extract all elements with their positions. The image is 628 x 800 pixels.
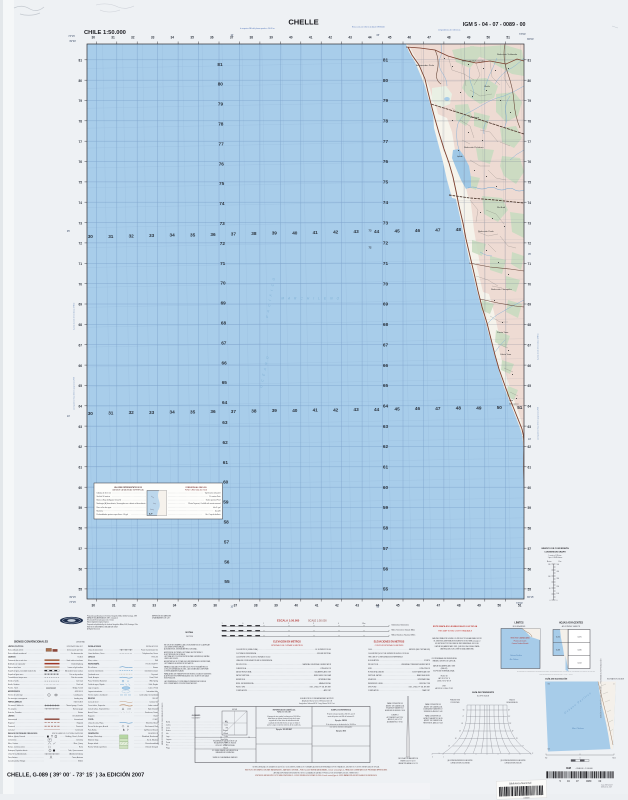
- svg-text:47: 47: [435, 228, 441, 233]
- svg-text:61: 61: [383, 465, 389, 470]
- svg-text:x 125: x 125: [127, 709, 131, 711]
- svg-text:Ducañll: Ducañll: [215, 509, 221, 512]
- svg-text:50: 50: [498, 604, 502, 608]
- svg-text:77: 77: [218, 141, 224, 146]
- svg-text:CHELLE: CHELLE: [288, 18, 318, 27]
- svg-text:NOTAS: NOTAS: [186, 631, 194, 634]
- svg-text:67: 67: [221, 340, 227, 345]
- svg-text:43: 43: [353, 229, 359, 234]
- svg-text:71: 71: [383, 261, 389, 266]
- svg-text:31: 31: [108, 411, 114, 416]
- svg-text:INTERVALO DE CURVAS 50 METROS: INTERVALO DE CURVAS 50 METROS: [271, 644, 303, 647]
- svg-text:48: 48: [457, 604, 461, 608]
- svg-text:46: 46: [408, 36, 412, 40]
- svg-text:39: 39: [272, 408, 278, 413]
- svg-text:Reducción Peule: Reducción Peule: [478, 231, 495, 233]
- svg-text:0089: 0089: [586, 780, 592, 783]
- svg-text:Bahía: Bahía: [166, 722, 170, 724]
- svg-text:32: 32: [131, 36, 135, 40]
- svg-text:Well, Spring: Well, Spring: [149, 681, 158, 683]
- svg-text:36: 36: [210, 232, 216, 237]
- svg-text:50: 50: [549, 588, 551, 590]
- svg-text:SCALE 1:50.000: SCALE 1:50.000: [308, 620, 327, 623]
- svg-text:RELIEVE: RELIEVE: [88, 698, 95, 700]
- svg-text:39°15': 39°15': [69, 596, 76, 599]
- svg-text:35: 35: [190, 232, 196, 237]
- svg-text:71: 71: [78, 262, 82, 266]
- svg-text:LINKS UND SCHON.: LINKS UND SCHON.: [164, 658, 179, 660]
- svg-text:45: 45: [396, 604, 400, 608]
- svg-text:33: 33: [149, 233, 155, 238]
- svg-text:05': 05': [376, 34, 380, 37]
- svg-text:75: 75: [219, 181, 225, 186]
- svg-text:Sin demarcación: Sin demarcación: [71, 653, 83, 655]
- svg-text:Ejemplo: 18G MD 8667: Ejemplo: 18G MD 8667: [276, 729, 292, 731]
- svg-text:19: 19: [448, 746, 450, 748]
- svg-text:79: 79: [383, 98, 389, 103]
- svg-text:FENCES: FENCES: [152, 656, 158, 658]
- svg-text:60: 60: [383, 485, 389, 490]
- svg-text:41: 41: [309, 36, 313, 40]
- svg-text:81: 81: [383, 58, 389, 63]
- svg-text:72: 72: [383, 241, 389, 246]
- svg-text:Bridge, Tunnel: Bridge, Tunnel: [73, 688, 84, 690]
- svg-text:HUSO 18: HUSO 18: [441, 676, 448, 678]
- svg-text:39°00': 39°00': [69, 40, 76, 43]
- svg-text:1.000: 1.000: [368, 649, 372, 651]
- svg-text:58: 58: [383, 526, 389, 531]
- svg-text:Esta carta se refiere al datum: Esta carta se refiere al datum WGS-84: [352, 26, 384, 29]
- svg-text:64: 64: [78, 405, 82, 409]
- svg-text:77: 77: [78, 140, 82, 144]
- svg-text:39: 39: [274, 604, 278, 608]
- svg-text:Naufragio (A) descubierto, Sum: Naufragio (A) descubierto, Sumergido con…: [97, 502, 146, 505]
- svg-text:Chelle: Chelle: [484, 86, 491, 88]
- svg-text:Building, Church, School: Building, Church, School: [66, 736, 84, 738]
- svg-text:38: 38: [254, 604, 258, 608]
- svg-text:49: 49: [467, 36, 471, 40]
- svg-text:1: 1: [263, 623, 264, 625]
- svg-text:500: 500: [557, 564, 560, 566]
- svg-text:Edificio, Iglesia, Escuela: Edificio, Iglesia, Escuela: [8, 736, 25, 738]
- svg-text:33: 33: [149, 410, 155, 415]
- svg-text:57: 57: [528, 547, 532, 551]
- svg-text:74: 74: [219, 201, 225, 206]
- svg-text:G-102: G-102: [577, 663, 581, 665]
- svg-text:62: 62: [528, 445, 532, 449]
- svg-text:30: 30: [92, 604, 96, 608]
- svg-text:73°00': 73°00': [516, 602, 523, 605]
- svg-text:75: 75: [383, 180, 389, 185]
- svg-text:41: 41: [313, 408, 319, 413]
- svg-text:LEGEND: LEGEND: [76, 642, 85, 644]
- svg-text:62: 62: [222, 440, 228, 445]
- svg-text:69: 69: [221, 301, 227, 306]
- svg-text:66: 66: [221, 360, 227, 365]
- svg-text:30: 30: [88, 411, 94, 416]
- svg-text:GUÍA DE ELEVACIÓN: GUÍA DE ELEVACIÓN: [545, 678, 568, 681]
- svg-text:37: 37: [234, 604, 238, 608]
- svg-text:POINTS: POINTS: [424, 660, 430, 662]
- svg-text:40: 40: [289, 36, 293, 40]
- svg-text:55: 55: [383, 587, 389, 592]
- svg-text:31: 31: [112, 604, 116, 608]
- svg-text:G-090: G-090: [577, 650, 581, 652]
- svg-text:750: 750: [548, 684, 551, 686]
- svg-text:43: 43: [355, 604, 359, 608]
- svg-text:Plesio Taymuni, Cuellall with: Plesio Taymuni, Cuellall with morte mana…: [188, 502, 220, 505]
- svg-text:47: 47: [435, 406, 441, 411]
- svg-text:79: 79: [218, 102, 224, 107]
- svg-text:CHILE 1:50.000: CHILE 1:50.000: [84, 30, 126, 36]
- svg-text:64: 64: [528, 405, 532, 409]
- svg-text:76: 76: [219, 161, 225, 166]
- svg-text:Vía normal / doble vía: Vía normal / doble vía: [8, 705, 24, 707]
- svg-text:47: 47: [437, 604, 441, 608]
- svg-text:57: 57: [78, 547, 82, 551]
- svg-text:71: 71: [220, 261, 226, 266]
- svg-text:70: 70: [528, 282, 532, 286]
- svg-text:Rock awash, Reef: Rock awash, Reef: [145, 726, 158, 728]
- svg-text:49: 49: [476, 405, 482, 410]
- svg-text:10': 10': [67, 415, 71, 418]
- svg-text:Beach: Beach: [223, 748, 228, 750]
- svg-text:61: 61: [78, 466, 82, 470]
- svg-text:34: 34: [169, 233, 175, 238]
- svg-text:30: 30: [92, 36, 96, 40]
- svg-text:39: 39: [269, 36, 273, 40]
- svg-text:42: 42: [333, 407, 339, 412]
- svg-text:70: 70: [78, 282, 82, 286]
- svg-text:46: 46: [415, 228, 421, 233]
- svg-text:Banco o Bajo de Aguas Chauchil: Banco o Bajo de Aguas Chauchil: [97, 499, 122, 502]
- svg-text:73: 73: [383, 220, 389, 225]
- svg-text:ELEVACIONES EN METROS: ELEVACIONES EN METROS: [374, 641, 405, 644]
- svg-text:IGM - CHILE, PT SN, IER RRT: IGM - CHILE, PT SN, IER RRT: [310, 687, 331, 689]
- svg-text:60: 60: [223, 480, 229, 485]
- svg-text:IGM: IGM: [566, 766, 571, 770]
- svg-text:IGM 5 - 04 - 07 - 0089 - 00: IGM 5 - 04 - 07 - 0089 - 00: [463, 22, 526, 28]
- svg-text:Ejemplo: 8676: Ejemplo: 8676: [336, 731, 346, 733]
- svg-text:57: 57: [383, 546, 389, 551]
- svg-text:Sucho querca Pleof: Sucho querca Pleof: [206, 499, 221, 502]
- svg-text:48: 48: [456, 227, 462, 232]
- svg-text:40: 40: [292, 408, 298, 413]
- svg-text:PROJECTION: PROJECTION: [368, 664, 378, 666]
- svg-text:Cove: Cove: [224, 724, 228, 726]
- svg-text:THIS MAP IS RED LIGHT READABLE: THIS MAP IS RED LIGHT READABLE: [438, 630, 473, 633]
- svg-text:Kilómetros Kilometers: Kilómetros Kilometers: [392, 624, 410, 627]
- svg-text:36: 36: [210, 409, 216, 414]
- svg-text:REFERENCE LEVEL: REFERENCE LEVEL: [368, 683, 383, 685]
- svg-text:19: 19: [248, 737, 250, 739]
- svg-text:Rocks: Rocks: [154, 715, 159, 717]
- svg-text:81: 81: [217, 62, 223, 67]
- svg-text:79: 79: [78, 99, 82, 103]
- svg-text:Océano Pacífico: Océano Pacífico: [510, 655, 522, 657]
- svg-text:73: 73: [78, 221, 82, 225]
- svg-text:Lago o Laguna: Lago o Laguna: [88, 688, 99, 690]
- svg-text:Regional: Regional: [8, 722, 15, 724]
- svg-text:74: 74: [528, 201, 532, 205]
- svg-text:GUÍA DE PENDIENTE: GUÍA DE PENDIENTE: [472, 691, 495, 694]
- svg-text:GN MN: GN MN: [232, 709, 237, 711]
- svg-text:Divided highway: Divided highway: [71, 663, 83, 665]
- svg-text:65: 65: [528, 384, 532, 388]
- svg-text:69: 69: [528, 303, 532, 307]
- svg-text:62: 62: [383, 444, 389, 449]
- svg-text:55: 55: [528, 588, 532, 592]
- svg-text:51: 51: [517, 405, 523, 410]
- svg-text:SIGNOS CONVENCIONALES: SIGNOS CONVENCIONALES: [14, 641, 48, 644]
- svg-text:Casa de piedra, Refugio: Casa de piedra, Refugio: [8, 761, 25, 763]
- svg-text:74: 74: [383, 200, 389, 205]
- svg-text:Senda o huella: Senda o huella: [8, 681, 19, 683]
- svg-text:mapa IGM 5-04-07: mapa IGM 5-04-07: [601, 784, 613, 786]
- svg-text:IGM - CHILE, PT SN, IER RRT: IGM - CHILE, PT SN, IER RRT: [409, 687, 430, 689]
- svg-text:78: 78: [383, 119, 389, 124]
- svg-text:36: 36: [213, 604, 217, 608]
- svg-text:32: 32: [132, 604, 136, 608]
- svg-text:71: 71: [528, 262, 532, 266]
- svg-text:41: 41: [315, 604, 319, 608]
- svg-text:Miles Terrestres Statute Mil: Miles Terrestres Statute Miles: [392, 629, 416, 632]
- svg-text:la esquina NE del plano queda: la esquina NE del plano queda a 24.09 m: [240, 28, 275, 30]
- svg-text:ESCALA 1:50.000: ESCALA 1:50.000: [277, 619, 300, 623]
- svg-text:43: 43: [353, 407, 359, 412]
- svg-text:Reducción Chanquilco: Reducción Chanquilco: [491, 289, 513, 291]
- svg-text:ESTE MAPA ES LEGIBLE BAJO LUZ: ESTE MAPA ES LEGIBLE BAJO LUZ ROJA: [433, 625, 478, 628]
- svg-text:100: 100: [548, 749, 551, 751]
- svg-text:56: 56: [383, 566, 389, 571]
- svg-text:Curva de nivel: Curva de nivel: [88, 702, 99, 704]
- svg-text:Faro, Baliza: Faro, Baliza: [88, 729, 97, 731]
- svg-text:37: 37: [231, 409, 237, 414]
- svg-text:31: 31: [111, 36, 115, 40]
- svg-text:Scrub, Meadow: Scrub, Meadow: [147, 740, 159, 742]
- svg-text:Landing area: Landing area: [74, 695, 83, 697]
- svg-text:corresponde al huso 19 de la p: corresponde al huso 19 de la proyección …: [538, 407, 540, 440]
- svg-text:67: 67: [383, 342, 389, 347]
- svg-text:58: 58: [78, 527, 82, 531]
- svg-text:80: 80: [383, 78, 389, 83]
- svg-text:HOJAS ADYACENTES: HOJAS ADYACENTES: [559, 622, 584, 625]
- svg-text:59: 59: [223, 500, 229, 505]
- svg-text:RELIEF: RELIEF: [152, 698, 158, 700]
- svg-text:Caída de agua, Rápido: Caída de agua, Rápido: [88, 684, 105, 686]
- svg-text:40: 40: [295, 604, 299, 608]
- svg-text:198828: 198828: [523, 797, 529, 799]
- svg-text:1987: 1987: [442, 686, 446, 688]
- svg-text:38: 38: [251, 409, 257, 414]
- svg-text:Provincial: Provincial: [76, 726, 84, 728]
- svg-text:81: 81: [528, 59, 532, 63]
- svg-text:Pu centra Peta: Pu centra Peta: [209, 495, 220, 498]
- svg-text:- CHELLE - 1:50.000: - CHELLE - 1:50.000: [575, 768, 593, 770]
- svg-text:66: 66: [78, 364, 82, 368]
- svg-text:NOTES: NOTES: [186, 636, 194, 638]
- svg-text:EJEMPLO: EJEMPLO: [391, 715, 399, 717]
- svg-text:CONVERSION GRAPH: CONVERSION GRAPH: [544, 550, 566, 553]
- svg-text:Profundidades puntos específic: Profundidades puntos específicos - 60 ga…: [97, 513, 129, 516]
- svg-text:EL SUPERIOR 18.000: EL SUPERIOR 18.000: [315, 649, 331, 651]
- svg-text:38: 38: [250, 36, 254, 40]
- svg-text:Isolde: Isolde: [457, 156, 463, 158]
- svg-text:Tank, Open reservoir: Tank, Open reservoir: [68, 750, 83, 752]
- svg-text:Bahamondes Peule: Bahamondes Peule: [416, 65, 435, 67]
- svg-text:GPS POINT: GPS POINT: [368, 687, 376, 689]
- svg-text:Isla: Isla: [166, 733, 169, 735]
- svg-text:59: 59: [78, 506, 82, 510]
- svg-text:Communal: Communal: [75, 729, 83, 731]
- svg-text:63: 63: [78, 425, 82, 429]
- svg-text:G-074: G-074: [556, 637, 560, 639]
- svg-text:81: 81: [78, 59, 82, 63]
- svg-text:58: 58: [224, 520, 230, 525]
- svg-text:CONTOUR INTERVAL 50 METERS: CONTOUR INTERVAL 50 METERS: [375, 644, 404, 647]
- svg-text:90: 90: [463, 710, 465, 712]
- svg-text:42: 42: [329, 36, 333, 40]
- svg-text:Veril de 50 metros: Veril de 50 metros: [97, 495, 111, 498]
- svg-text:45: 45: [394, 228, 400, 233]
- svg-text:42: 42: [333, 230, 339, 235]
- svg-text:Superficie ligera seca: Superficie ligera seca: [8, 674, 23, 676]
- svg-text:PENDIENTE EN: PENDIENTE EN: [450, 700, 460, 702]
- svg-text:18: 18: [220, 737, 222, 739]
- svg-text:Lake or Pond: Lake or Pond: [149, 688, 159, 690]
- svg-text:77: 77: [528, 140, 532, 144]
- svg-text:56: 56: [78, 567, 82, 571]
- svg-text:Reducción Trallonada: Reducción Trallonada: [497, 53, 518, 56]
- svg-text:44: 44: [374, 407, 380, 412]
- svg-text:Isóbata de 10 m en: Isóbata de 10 m en: [97, 492, 112, 495]
- svg-text:76: 76: [78, 160, 82, 164]
- svg-text:Woodland, Brushwood: Woodland, Brushwood: [142, 736, 158, 738]
- svg-text:48: 48: [456, 406, 462, 411]
- svg-text:3: 3: [313, 623, 314, 625]
- svg-text:CERCOS: CERCOS: [88, 656, 95, 658]
- svg-text:34: 34: [171, 36, 175, 40]
- svg-text:50: 50: [487, 36, 491, 40]
- svg-text:Biblioteca Nacional: Biblioteca Nacional: [509, 781, 532, 786]
- svg-text:Provincial: Provincial: [8, 726, 16, 728]
- svg-text:Cerro: Cerro: [166, 727, 170, 729]
- svg-text:68: 68: [383, 322, 389, 327]
- svg-text:Pichilcura: Pichilcura: [470, 116, 480, 119]
- svg-text:69: 69: [78, 303, 82, 307]
- svg-text:35: 35: [193, 604, 197, 608]
- svg-text:56: 56: [528, 567, 532, 571]
- svg-text:30: 30: [88, 234, 94, 239]
- svg-text:200: 200: [557, 586, 560, 588]
- svg-text:73°15': 73°15': [68, 35, 75, 38]
- svg-text:10': 10': [528, 438, 532, 441]
- svg-text:1.000 METER (SOLO THE SUPERIOR: 1.000 METER (SOLO THE SUPERIOR LEVELS OF…: [368, 653, 409, 655]
- svg-text:Top/5 Lomo Chauchil: Top/5 Lomo Chauchil: [205, 493, 221, 495]
- svg-text:Roquerío: Roquerío: [88, 715, 95, 717]
- svg-text:44: 44: [374, 229, 380, 234]
- svg-text:78: 78: [528, 120, 532, 124]
- svg-text:ADJOINING SHEETS: ADJOINING SHEETS: [562, 625, 581, 628]
- svg-text:Río: Río: [166, 745, 169, 747]
- svg-text:Laguna: Laguna: [166, 739, 171, 741]
- svg-text:0089-00 ed. 2007: 0089-00 ed. 2007: [601, 787, 612, 789]
- svg-text:G-089: G-089: [556, 650, 560, 652]
- svg-text:34: 34: [173, 604, 177, 608]
- svg-text:Vin. Crap de bullaris: Vin. Crap de bullaris: [205, 513, 220, 516]
- svg-text:67: 67: [78, 343, 82, 347]
- svg-text:UTM-ZONE 18: UTM-ZONE 18: [420, 668, 430, 670]
- svg-text:64: 64: [383, 404, 389, 409]
- svg-text:Sand area, Dunes: Sand area, Dunes: [145, 712, 158, 714]
- svg-text:76: 76: [383, 159, 389, 164]
- svg-text:Narrow gauge: Narrow gauge: [73, 709, 83, 711]
- svg-text:80: 80: [78, 79, 82, 83]
- svg-text:Pies: Pies: [559, 561, 562, 563]
- svg-text:Reducción Pichilcura: Reducción Pichilcura: [464, 146, 484, 149]
- svg-text:73°15': 73°15': [69, 601, 76, 604]
- svg-text:73: 73: [220, 221, 226, 226]
- svg-text:4: 4: [338, 623, 339, 625]
- svg-text:Falls, Rapids: Falls, Rapids: [149, 684, 158, 686]
- svg-text:BOUNDARIES: BOUNDARIES: [513, 625, 526, 628]
- svg-text:66: 66: [528, 364, 532, 368]
- svg-text:75: 75: [528, 181, 532, 185]
- svg-text:67: 67: [528, 343, 532, 347]
- svg-text:59: 59: [528, 506, 532, 510]
- svg-text:62: 62: [78, 445, 82, 449]
- svg-text:60: 60: [78, 486, 82, 490]
- svg-text:150: 150: [548, 564, 551, 566]
- svg-text:64: 64: [222, 400, 228, 405]
- svg-text:72: 72: [528, 242, 532, 246]
- svg-text:68: 68: [221, 321, 227, 326]
- svg-text:Orchard, Vineyard: Orchard, Vineyard: [145, 747, 158, 749]
- svg-text:63: 63: [528, 425, 532, 429]
- svg-text:Playa: Playa: [166, 748, 170, 750]
- svg-text:100: 100: [557, 593, 560, 595]
- svg-text:72: 72: [78, 242, 82, 246]
- svg-text:33: 33: [151, 36, 155, 40]
- svg-text:42: 42: [335, 604, 339, 608]
- svg-text:36: 36: [210, 36, 214, 40]
- svg-text:68: 68: [528, 323, 532, 327]
- svg-text:Dry wash: Dry wash: [151, 674, 158, 676]
- svg-text:45: 45: [394, 407, 400, 412]
- svg-text:Regional: Regional: [77, 722, 84, 724]
- svg-text:SPHEROID: SPHEROID: [368, 679, 377, 681]
- svg-text:80: 80: [528, 79, 532, 83]
- svg-text:65: 65: [222, 380, 228, 385]
- svg-text:37: 37: [231, 232, 237, 237]
- svg-text:73°00': 73°00': [519, 33, 526, 36]
- svg-text:05': 05': [528, 253, 532, 256]
- svg-text:10': 10': [230, 34, 234, 37]
- svg-text:Telephone line, Fence: Telephone line, Fence: [142, 653, 158, 655]
- svg-text:ELEVATION GUIDE: ELEVATION GUIDE: [607, 678, 625, 681]
- svg-text:32: 32: [129, 233, 135, 238]
- svg-text:55: 55: [224, 579, 230, 584]
- svg-text:79: 79: [528, 99, 532, 103]
- svg-text:63: 63: [222, 420, 228, 425]
- svg-text:Curva índice, Depresión: Curva índice, Depresión: [88, 705, 105, 707]
- svg-text:VALORES REPRESENTATIVOS DE: VALORES REPRESENTATIVOS DE: [114, 486, 143, 489]
- svg-text:05': 05': [376, 606, 380, 609]
- svg-text:GRÁFICO DE CONVERSIÓN: GRÁFICO DE CONVERSIÓN: [541, 547, 569, 550]
- svg-text:41: 41: [313, 230, 319, 235]
- svg-text:38: 38: [251, 231, 257, 236]
- svg-text:63: 63: [383, 424, 389, 429]
